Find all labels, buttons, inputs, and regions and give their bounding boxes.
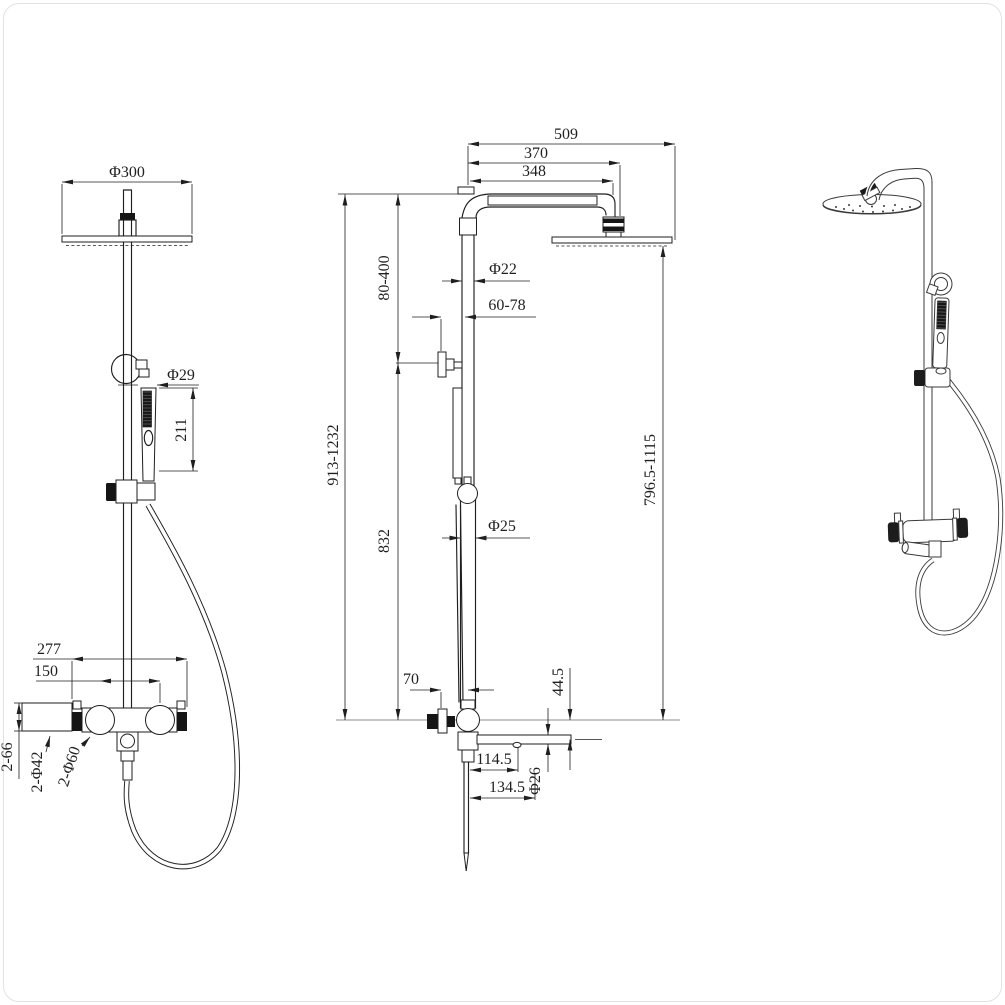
dim-label-phi300: Φ300: [109, 164, 145, 181]
dim-arm-length: 348: [470, 163, 613, 195]
persp-spray-face: [937, 301, 947, 329]
dim-valve-offset: 70: [403, 671, 494, 708]
dim-label-913-1232: 913-1232: [325, 424, 342, 485]
dim-label-phi26: Φ26: [527, 767, 544, 795]
dim-total-height: 913-1232: [325, 195, 345, 721]
dim-label-60-78: 60-78: [488, 297, 525, 314]
persp-holder-bracket: [914, 368, 950, 387]
dim-label-phi25: Φ25: [488, 518, 516, 535]
persp-hose: [918, 380, 1001, 633]
dim-label-70: 70: [403, 671, 419, 688]
shower-head-disc-side: [552, 237, 672, 243]
hose-adapter: [123, 761, 132, 780]
right-handle: [146, 706, 175, 735]
technical-drawing-sheet: Φ300: [0, 0, 1005, 1005]
dim-label-114-5: 114.5: [476, 751, 511, 768]
dim-lower-height: 832: [376, 363, 398, 720]
slider-knob: [106, 483, 116, 501]
dim-label-277: 277: [37, 641, 61, 658]
persp-mixer-valve: [887, 509, 968, 544]
persp-holder-knob: [914, 370, 925, 386]
dim-spout-reach-2: 134.5: [470, 774, 535, 800]
front-hand-shower: [141, 388, 156, 481]
dim-label-370: 370: [524, 145, 548, 162]
persp-shower-button: [937, 332, 944, 343]
arm-sleeve: [488, 196, 597, 205]
persp-hand-shower: [933, 298, 949, 368]
dim-label-796: 796.5-1115: [642, 434, 659, 506]
front-mixer-valve: [22, 701, 187, 780]
persp-spout: [901, 541, 932, 557]
front-overhead-shower: [62, 190, 192, 246]
dim-escutcheon-diameter: 2-Φ42: [29, 736, 50, 793]
hose-end-tip: [464, 853, 469, 871]
dim-pipe-diameter-lower: Φ25: [442, 518, 530, 538]
dim-spout-diameter: Φ26: [527, 708, 548, 795]
dim-overall-reach: 509: [468, 126, 675, 240]
persp-hose-connector: [929, 541, 941, 557]
valve-knob-side: [457, 709, 480, 732]
shower-head-disc: [62, 236, 192, 242]
front-hose: [126, 505, 237, 867]
slider-ring: [458, 484, 478, 504]
persp-valve-body: [903, 519, 958, 543]
front-wall-bracket: [112, 355, 150, 384]
dim-upper-height: 80-400: [376, 195, 398, 364]
front-view: Φ300: [0, 164, 237, 867]
front-slider-holder: [106, 480, 155, 503]
dim-head-diameter: Φ300: [62, 164, 192, 234]
dim-handle-diameter: 2-Φ60: [55, 737, 90, 789]
dim-label-phi22: Φ22: [489, 261, 517, 278]
wall-inlet: [427, 714, 438, 729]
dim-label-44-5: 44.5: [550, 668, 567, 696]
side-view: 913-1232 80-400 832 509 370 348: [325, 126, 680, 871]
persp-ring-holder: [927, 273, 952, 295]
drawing-svg: Φ300: [0, 0, 1005, 1005]
dim-label-348: 348: [522, 163, 546, 180]
dim-label-134-5: 134.5: [489, 779, 525, 796]
dim-label-80-400: 80-400: [376, 255, 393, 300]
dim-spout-drop: 44.5: [550, 668, 602, 770]
dim-head-height: 796.5-1115: [642, 246, 663, 720]
dim-pipe-diameter-upper: Φ22: [442, 261, 530, 281]
dim-inlet-spacing: 150: [34, 663, 160, 703]
dim-spout-reach-1: 114.5: [470, 748, 518, 772]
pipe-top-cap: [458, 187, 474, 194]
side-shower-arm: [458, 187, 672, 246]
hand-shower-spray-face: [143, 391, 152, 427]
dim-label-509: 509: [554, 126, 578, 143]
left-handle: [86, 706, 115, 735]
front-riser-pipe: [124, 242, 132, 708]
pipe-collar: [460, 218, 477, 235]
side-wall-bracket: [438, 352, 462, 377]
dim-label-211: 211: [173, 418, 190, 441]
perspective-view: [823, 168, 1001, 633]
dim-label-832: 832: [376, 529, 393, 553]
dim-hand-shower-length: 211: [159, 388, 198, 471]
wall-escutcheon: [22, 703, 72, 731]
persp-overhead-shower: [823, 183, 921, 214]
connector-nut-band: [120, 213, 135, 220]
spout-side: [477, 735, 571, 744]
dim-label-phi29: Φ29: [167, 367, 195, 384]
dim-label-2-60: 2-Φ60: [55, 744, 84, 788]
dim-label-2-42: 2-Φ42: [29, 751, 46, 792]
dim-label-150: 150: [34, 663, 58, 680]
persp-riser-pipe: [924, 182, 932, 521]
dim-label-2-66: 2-66: [0, 742, 16, 771]
